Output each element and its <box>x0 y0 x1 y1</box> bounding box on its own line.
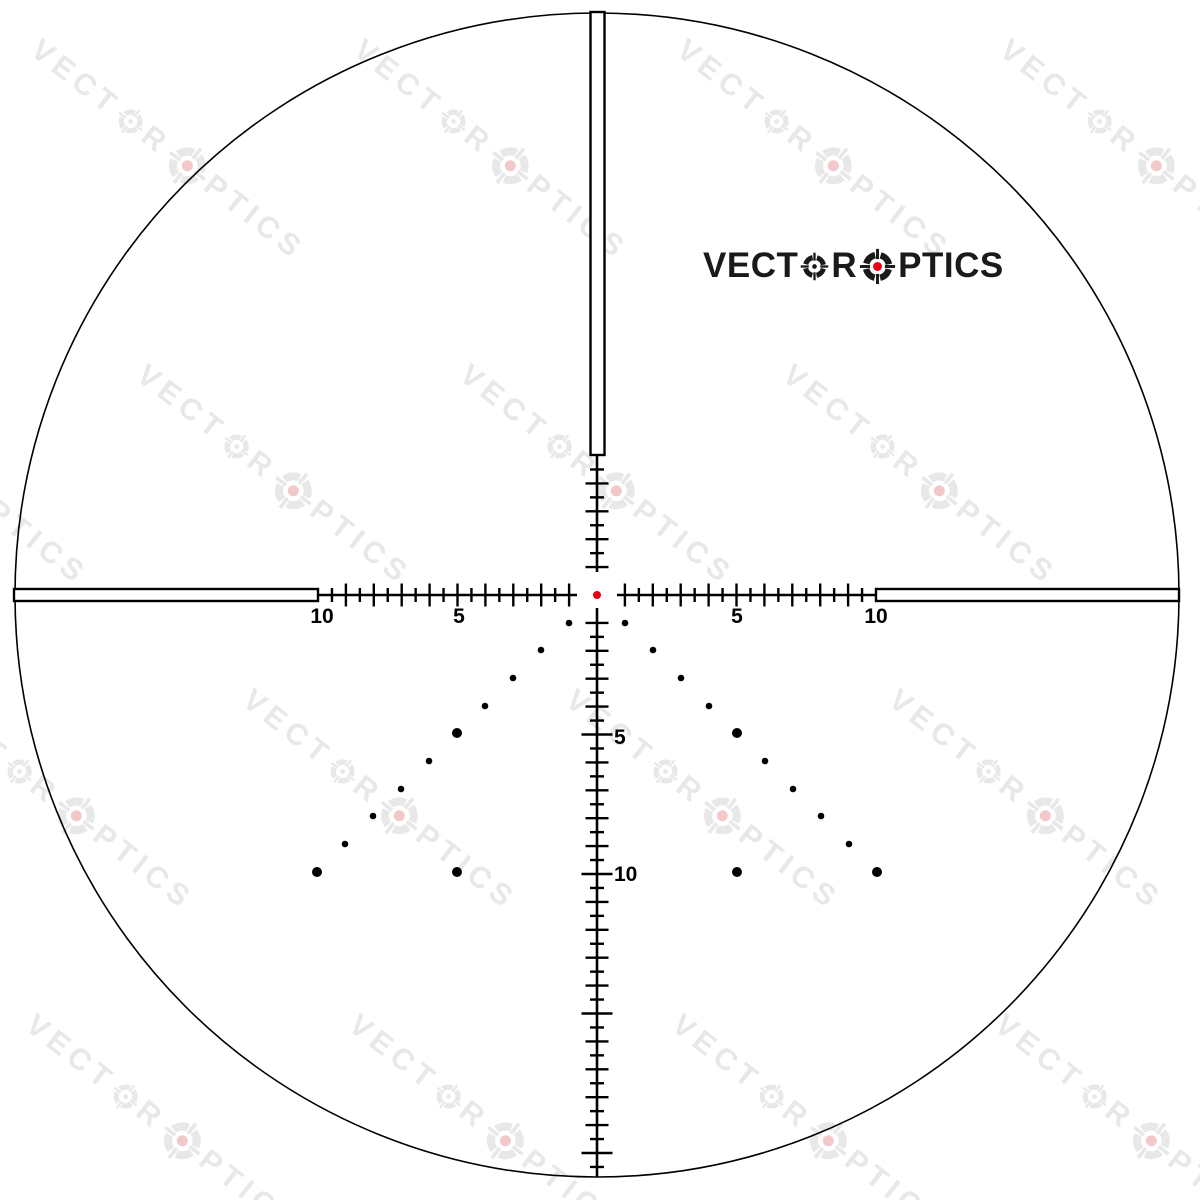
mil-label: 5 <box>614 726 626 749</box>
mil-label: 5 <box>731 605 743 628</box>
holdover-dot <box>706 703 713 710</box>
holdover-dot <box>872 867 882 877</box>
holdover-dot <box>566 620 573 627</box>
mil-label: 10 <box>614 863 637 886</box>
logo-text-vect: VECT <box>703 246 798 286</box>
reticle-svg: 105510510 <box>0 0 1200 1200</box>
holdover-dot <box>818 813 825 820</box>
reticle-o-reddot-icon <box>859 248 896 285</box>
post-top <box>591 12 605 455</box>
o-center-dot <box>813 264 818 269</box>
holdover-dot <box>732 867 742 877</box>
center-red-dot <box>593 591 601 599</box>
holdover-dot <box>846 841 853 848</box>
reticle-diagram: VECTRPTICSVECTRPTICSVECTRPTICSVECTRPTICS… <box>0 0 1200 1200</box>
holdover-dot <box>790 786 797 793</box>
brand-logo: VECT R PTICS <box>703 246 1004 286</box>
logo-reticle-o-icon <box>798 252 831 281</box>
holdover-dot <box>426 758 433 765</box>
o-center-dot <box>873 262 882 271</box>
holdover-dot <box>398 786 405 793</box>
holdover-dot <box>370 813 377 820</box>
mil-label: 10 <box>310 605 333 628</box>
post-right <box>876 589 1179 601</box>
mil-label: 10 <box>864 605 887 628</box>
mil-label: 5 <box>453 605 465 628</box>
post-left <box>14 589 318 601</box>
holdover-dot <box>650 647 657 654</box>
holdover-dot <box>762 758 769 765</box>
holdover-dot <box>452 867 462 877</box>
logo-text-ptics: PTICS <box>898 246 1004 286</box>
logo-text-r: R <box>831 246 857 286</box>
holdover-dot <box>538 647 545 654</box>
holdover-dot <box>312 867 322 877</box>
holdover-dot <box>678 675 685 682</box>
holdover-dot <box>482 703 489 710</box>
logo-reticle-o-reddot-icon <box>857 248 898 285</box>
holdover-dot <box>342 841 349 848</box>
holdover-dot <box>510 675 517 682</box>
reticle-o-icon <box>800 252 829 281</box>
holdover-dot <box>732 728 742 738</box>
holdover-dot <box>452 728 462 738</box>
holdover-dot <box>622 620 629 627</box>
